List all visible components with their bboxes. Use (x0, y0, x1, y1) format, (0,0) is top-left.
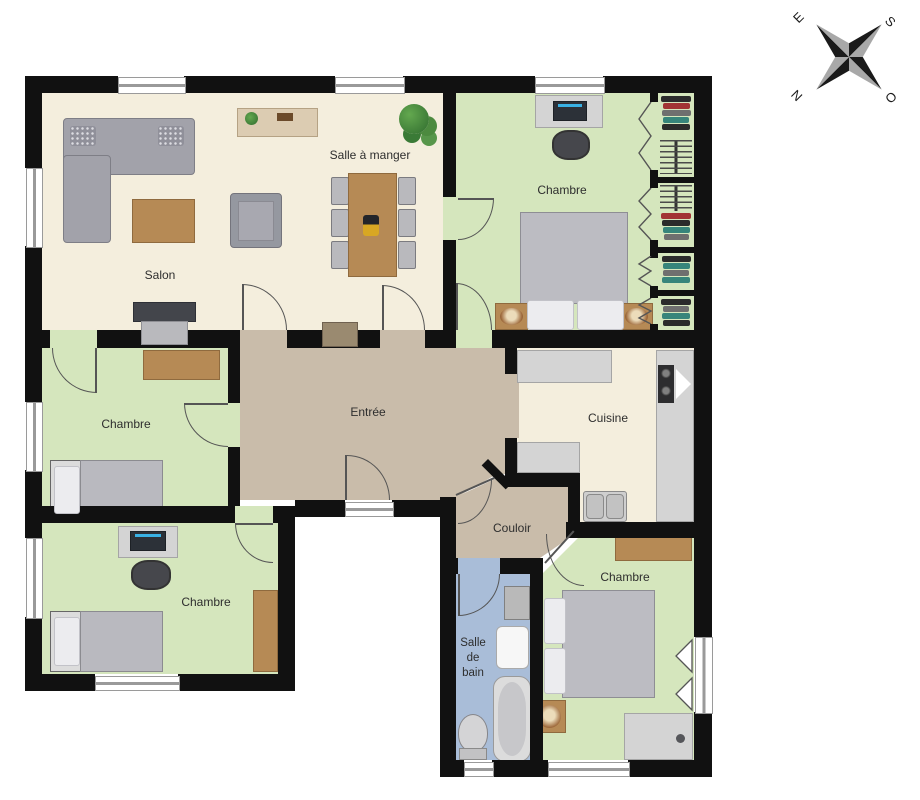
door-gap (456, 330, 492, 348)
window (118, 77, 186, 94)
window (26, 538, 43, 619)
wall (403, 76, 535, 93)
wall (295, 500, 345, 517)
kitchen-counter (517, 350, 612, 383)
bifold-door-icon (636, 102, 652, 170)
dining-chair (398, 209, 416, 237)
bathroom-label: Salle de bain (455, 636, 491, 681)
wall (278, 506, 295, 691)
closet-clothes (660, 213, 692, 240)
window (26, 168, 43, 248)
tv (133, 302, 196, 322)
door-gap (240, 330, 287, 348)
sink-basin (606, 494, 624, 519)
wall (694, 76, 712, 637)
door-gap (50, 330, 97, 348)
desk-lamp (676, 734, 685, 743)
window (26, 402, 43, 472)
wall (25, 76, 42, 168)
armchair-cushion (238, 201, 274, 241)
bed-pillow (527, 300, 574, 330)
bed-pillow (54, 617, 80, 666)
potted-plant (399, 104, 429, 134)
nightstand-lamp (495, 303, 528, 330)
floor-plan: Salon Salle à manger Chambre Chambre Cha… (0, 0, 920, 800)
bifold-door-icon (636, 256, 652, 286)
dining-chair (331, 241, 349, 269)
computer-monitor (553, 101, 587, 121)
closet-clothes (660, 299, 692, 326)
sideboard-plant (245, 112, 258, 125)
closet-shelf (652, 290, 694, 296)
kitchen-counter (517, 442, 580, 473)
toilet-tank (459, 748, 487, 760)
front-door-threshold (345, 502, 394, 517)
entree-label: Entrée (350, 405, 385, 419)
dining-chair (398, 177, 416, 205)
closet-shelf (652, 177, 694, 183)
door-gap (380, 330, 425, 348)
wall (530, 558, 543, 760)
cuisine-label: Cuisine (588, 411, 628, 425)
sideboard-tray (277, 113, 293, 121)
compass-o: O (882, 89, 900, 107)
cooktop (658, 365, 674, 403)
sofa-pillow (158, 126, 184, 146)
bed-pillow (577, 300, 624, 330)
wall (492, 330, 712, 348)
wall (566, 522, 712, 538)
dining-chair (331, 177, 349, 205)
closet-rail (660, 140, 692, 174)
salon-label: Salon (145, 268, 176, 282)
bathroom-cabinet (504, 586, 530, 620)
wall (25, 674, 95, 691)
compass-e: E (790, 9, 807, 26)
wall (650, 324, 658, 330)
console-table (322, 322, 358, 347)
wall (505, 473, 580, 487)
wall (530, 760, 548, 777)
window (95, 676, 180, 691)
bed-pillow (54, 466, 80, 514)
wall (440, 558, 458, 574)
couloir-label: Couloir (493, 521, 531, 535)
wall (650, 93, 658, 102)
wall (228, 447, 240, 506)
window (335, 77, 405, 94)
compass-star-icon (806, 14, 892, 100)
bifold-door-icon (636, 298, 652, 324)
wall (505, 348, 517, 374)
window (548, 762, 630, 777)
door-gap (235, 506, 273, 523)
bedroom-bottomleft-label: Chambre (181, 595, 230, 609)
wall (505, 438, 517, 475)
wall (628, 760, 712, 777)
dining-label: Salle à manger (330, 148, 411, 162)
tv-stand (141, 321, 188, 345)
door-gap (228, 403, 240, 447)
bathtub (493, 676, 531, 762)
dining-chair (331, 209, 349, 237)
closet-clothes (660, 256, 692, 283)
table-centerpiece (363, 215, 379, 236)
closet-clothes (660, 96, 692, 130)
bed-pillow (544, 598, 566, 644)
sofa-chaise (63, 155, 111, 243)
computer-monitor (130, 531, 166, 551)
appliance-door-icon (676, 369, 691, 399)
wall (443, 240, 456, 330)
closet-rail (660, 185, 692, 211)
wall (184, 76, 335, 93)
window (464, 762, 494, 777)
closet-shelf (652, 247, 694, 253)
window (535, 77, 605, 94)
casement-window-icon (672, 638, 694, 712)
wall (440, 760, 464, 777)
bifold-door-icon (636, 188, 652, 240)
wall (443, 93, 456, 197)
double-bed (562, 590, 655, 698)
bed-pillow (544, 648, 566, 694)
office-chair (552, 130, 590, 160)
toilet (458, 714, 488, 752)
wall (25, 470, 42, 538)
wall (228, 348, 240, 403)
office-chair (131, 560, 171, 590)
wall (425, 330, 456, 348)
door-gap (458, 558, 500, 574)
bedroom-topright-label: Chambre (537, 183, 586, 197)
bathroom-sink (496, 626, 529, 669)
sink-basin (586, 494, 604, 519)
double-bed (520, 212, 628, 304)
door-gap (443, 197, 456, 240)
dresser (143, 350, 220, 380)
single-bed-blanket (80, 611, 163, 672)
wall (25, 246, 42, 402)
compass-rose: E S N O (786, 2, 910, 118)
compass-n: N (788, 87, 805, 104)
wall (42, 330, 50, 348)
coffee-table (132, 199, 195, 243)
bedroom-midleft-label: Chambre (101, 417, 150, 431)
dining-chair (398, 241, 416, 269)
sofa-pillow (70, 126, 96, 146)
wardrobe (253, 590, 278, 672)
wall (440, 497, 456, 777)
window (695, 637, 713, 714)
bedroom-bottomright-label: Chambre (600, 570, 649, 584)
